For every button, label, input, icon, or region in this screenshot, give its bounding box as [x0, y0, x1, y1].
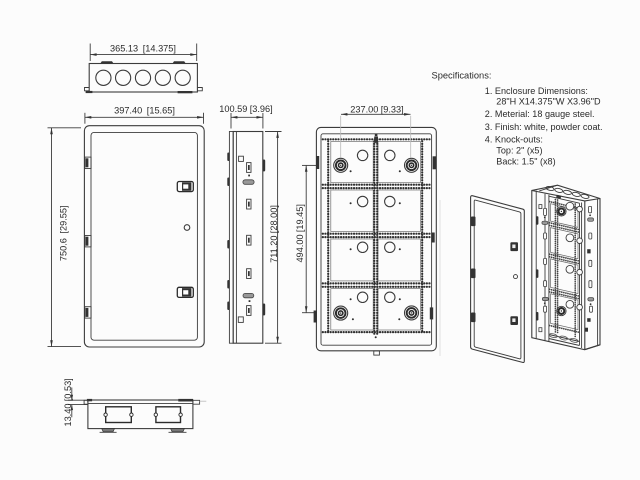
svg-text:237.00 [9.33]: 237.00 [9.33]	[350, 105, 403, 115]
svg-text:711.20 [28.00]: 711.20 [28.00]	[269, 205, 279, 263]
svg-text:2. Meterial: 18 gauge steel.: 2. Meterial: 18 gauge steel.	[485, 109, 595, 119]
svg-text:750.6 [29.55]: 750.6 [29.55]	[58, 205, 68, 261]
svg-text:4. Knock-outs:: 4. Knock-outs:	[485, 135, 543, 145]
svg-text:1. Enclosure Dimensions:: 1. Enclosure Dimensions:	[485, 86, 588, 96]
svg-text:397.40 [15.65]: 397.40 [15.65]	[114, 106, 175, 116]
svg-text:Back: 1.5" (x8): Back: 1.5" (x8)	[496, 156, 555, 166]
svg-text:100.59 [3.96]: 100.59 [3.96]	[219, 104, 272, 114]
svg-text:494.00 [19.45]: 494.00 [19.45]	[295, 204, 305, 262]
svg-text:365.13 [14.375]: 365.13 [14.375]	[110, 44, 176, 54]
svg-text:Top: 2" (x5): Top: 2" (x5)	[496, 145, 542, 155]
svg-text:3. Finish: white, powder coat.: 3. Finish: white, powder coat.	[485, 122, 603, 132]
svg-text:13.40 [0.53]: 13.40 [0.53]	[63, 378, 73, 426]
svg-text:28"H X14.375"W X3.96"D: 28"H X14.375"W X3.96"D	[496, 97, 601, 107]
svg-text:Specifications:: Specifications:	[432, 71, 492, 81]
